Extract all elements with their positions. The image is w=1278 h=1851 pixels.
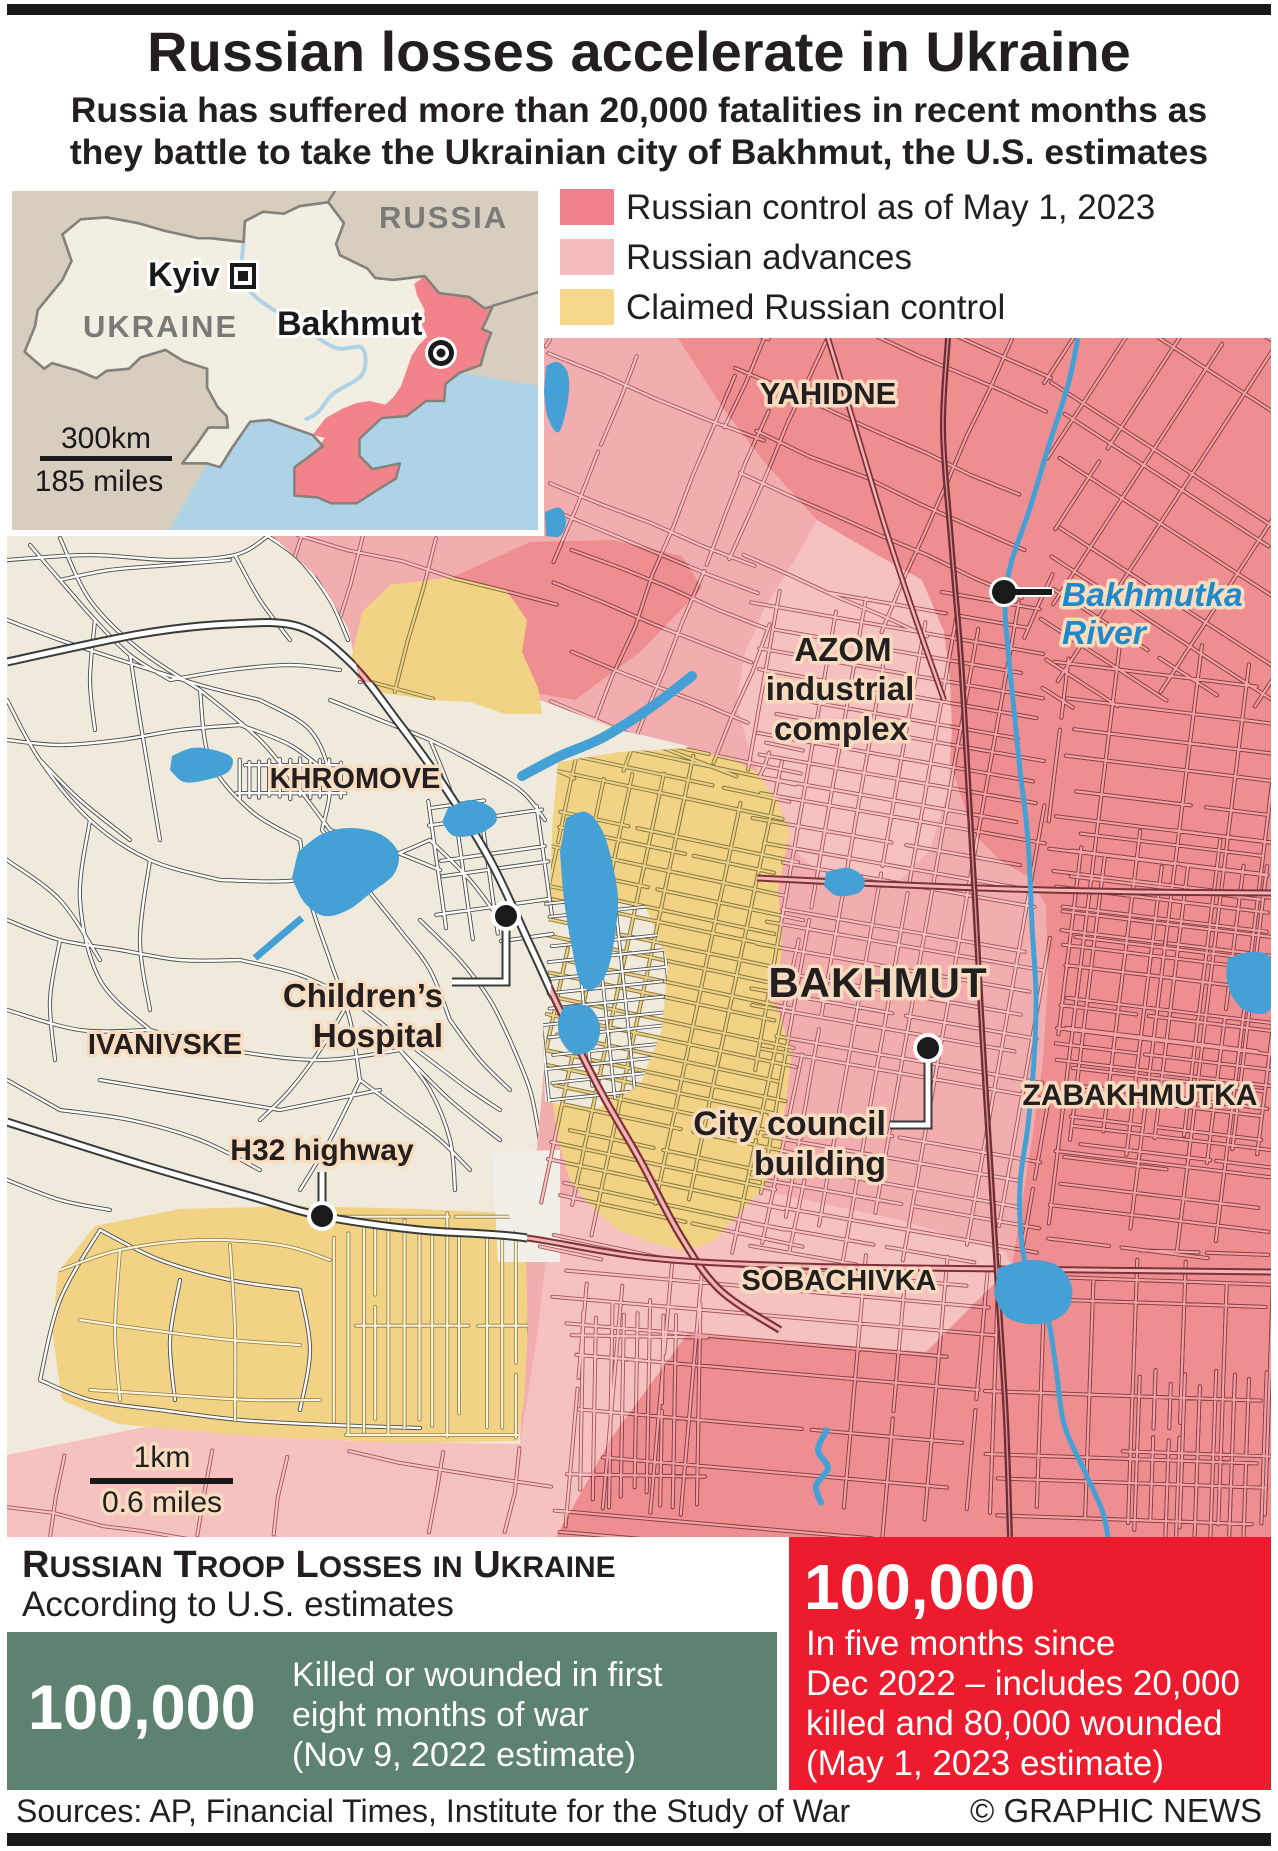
- svg-text:© GRAPHIC NEWS: © GRAPHIC NEWS: [970, 1792, 1262, 1829]
- svg-text:KHROMOVE: KHROMOVE: [270, 763, 441, 795]
- svg-text:1km: 1km: [134, 1441, 191, 1474]
- svg-text:Killed or wounded in first: Killed or wounded in first: [292, 1656, 663, 1694]
- svg-text:IVANIVSKE: IVANIVSKE: [88, 1029, 242, 1061]
- svg-text:In five months since: In five months since: [806, 1624, 1115, 1663]
- svg-text:0.6 miles: 0.6 miles: [102, 1486, 222, 1519]
- svg-text:River: River: [1062, 615, 1148, 652]
- svg-text:RUSSIA: RUSSIA: [379, 200, 508, 235]
- svg-text:Hospital: Hospital: [313, 1017, 443, 1054]
- svg-text:According to U.S. estimates: According to U.S. estimates: [22, 1585, 454, 1624]
- svg-text:building: building: [754, 1145, 886, 1183]
- svg-text:Dec 2022 – includes 20,000: Dec 2022 – includes 20,000: [806, 1664, 1240, 1703]
- svg-text:Russian control as of May 1, 2: Russian control as of May 1, 2023: [626, 188, 1155, 227]
- svg-text:ZABAKHMUTKA: ZABAKHMUTKA: [1023, 1079, 1258, 1112]
- svg-text:killed and 80,000 wounded: killed and 80,000 wounded: [806, 1704, 1222, 1743]
- svg-text:(May 1, 2023 estimate): (May 1, 2023 estimate): [806, 1744, 1164, 1783]
- svg-text:YAHIDNE: YAHIDNE: [760, 376, 897, 411]
- svg-text:Bakhmut: Bakhmut: [277, 305, 422, 343]
- svg-text:100,000: 100,000: [804, 1551, 1035, 1623]
- svg-text:H32 highway: H32 highway: [230, 1134, 414, 1167]
- svg-text:UKRAINE: UKRAINE: [83, 309, 238, 344]
- svg-text:they battle to take the Ukrain: they battle to take the Ukrainian city o…: [70, 132, 1208, 172]
- svg-text:BAKHMUT: BAKHMUT: [768, 959, 987, 1006]
- svg-text:SOBACHIVKA: SOBACHIVKA: [742, 1265, 937, 1297]
- svg-text:RUSSIAN TROOP LOSSES IN UKRAIN: RUSSIAN TROOP LOSSES IN UKRAINE: [22, 1544, 616, 1586]
- svg-text:100,000: 100,000: [28, 1673, 256, 1743]
- svg-text:AZOM: AZOM: [794, 631, 891, 668]
- svg-text:Russian advances: Russian advances: [626, 238, 912, 277]
- svg-text:complex: complex: [774, 710, 909, 747]
- svg-text:City council: City council: [693, 1105, 886, 1143]
- svg-text:Children’s: Children’s: [283, 977, 443, 1014]
- svg-text:Russia has suffered more than: Russia has suffered more than 20,000 fat…: [71, 90, 1207, 130]
- svg-text:(Nov 9, 2022 estimate): (Nov 9, 2022 estimate): [292, 1736, 636, 1774]
- svg-text:Claimed Russian control: Claimed Russian control: [626, 288, 1005, 327]
- svg-text:industrial: industrial: [766, 670, 915, 707]
- svg-text:185 miles: 185 miles: [35, 465, 163, 498]
- svg-text:Sources: AP, Financial Times,: Sources: AP, Financial Times, Institute …: [16, 1793, 851, 1829]
- svg-text:Bakhmutka: Bakhmutka: [1062, 577, 1243, 614]
- svg-text:300km: 300km: [61, 422, 151, 455]
- svg-text:Russian losses accelerate in U: Russian losses accelerate in Ukraine: [147, 20, 1131, 83]
- svg-text:eight months of war: eight months of war: [292, 1696, 589, 1734]
- svg-text:Kyiv: Kyiv: [148, 256, 220, 294]
